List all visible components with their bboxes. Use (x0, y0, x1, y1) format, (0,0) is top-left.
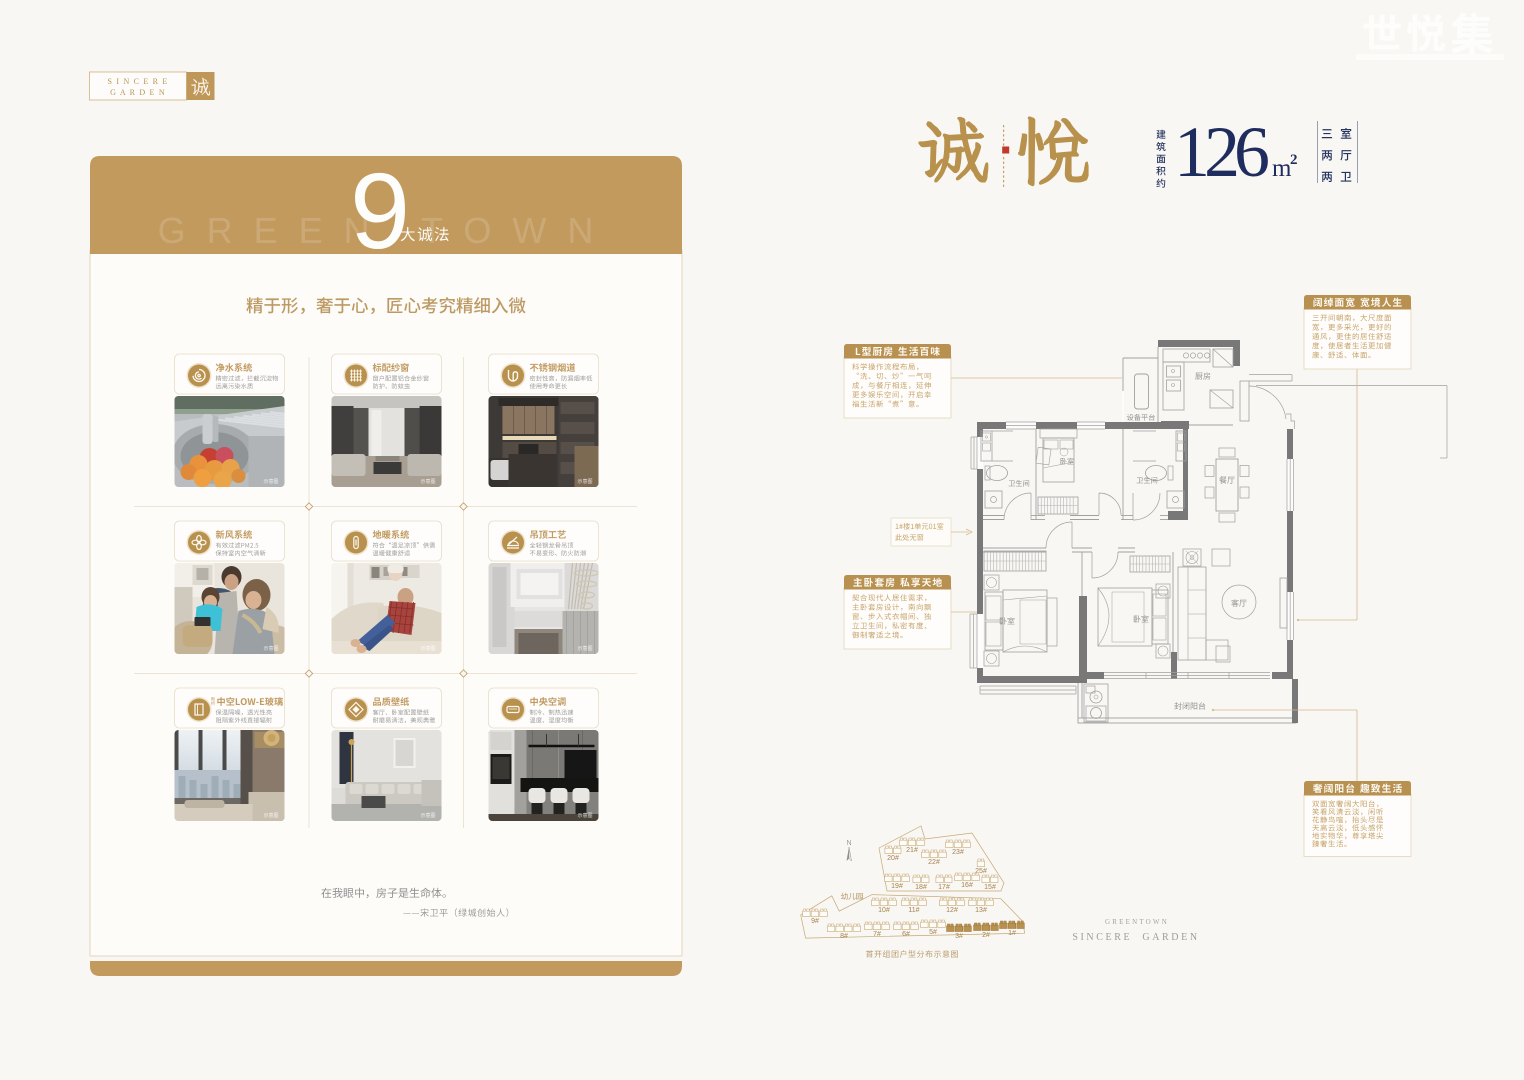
svg-text:示意图: 示意图 (263, 478, 278, 485)
svg-text:17#: 17# (938, 884, 950, 891)
svg-text:示意图: 示意图 (577, 812, 592, 819)
svg-text:2: 2 (1290, 152, 1298, 168)
svg-text:9#: 9# (811, 918, 819, 925)
svg-text:9: 9 (350, 150, 410, 271)
svg-text:16#: 16# (961, 882, 973, 889)
svg-text:23#: 23# (952, 849, 964, 856)
svg-text:18#: 18# (915, 884, 927, 891)
svg-text:示意图: 示意图 (420, 645, 435, 652)
svg-text:15#: 15# (984, 884, 996, 891)
svg-text:8#: 8# (840, 933, 848, 940)
svg-text:10#: 10# (878, 907, 890, 914)
svg-text:示意图: 示意图 (420, 812, 435, 819)
svg-text:21#: 21# (906, 847, 918, 854)
svg-text:3#: 3# (955, 933, 963, 940)
svg-text:N: N (846, 840, 851, 847)
svg-text:G A R D E N: G A R D E N (110, 88, 166, 97)
svg-text:示意图: 示意图 (420, 478, 435, 485)
svg-text:126: 126 (1174, 112, 1268, 192)
svg-text:S I N C E R E: S I N C E R E (108, 77, 169, 86)
svg-text:6#: 6# (902, 931, 910, 938)
svg-text:示意图: 示意图 (577, 645, 592, 652)
svg-text:m: m (1272, 155, 1292, 182)
svg-text:7#: 7# (873, 931, 881, 938)
svg-text:示意图: 示意图 (263, 645, 278, 652)
svg-text:示意图: 示意图 (577, 478, 592, 485)
svg-text:5#: 5# (929, 929, 937, 936)
svg-text:2#: 2# (982, 932, 990, 939)
svg-text:12#: 12# (946, 907, 958, 914)
svg-text:示意图: 示意图 (263, 812, 278, 819)
svg-text:11#: 11# (908, 907, 919, 914)
svg-text:1#: 1# (1008, 930, 1016, 937)
svg-text:SINCERE GARDEN: SINCERE GARDEN (1072, 932, 1199, 943)
svg-text:GREENTOWN: GREENTOWN (1105, 918, 1169, 926)
svg-text:13#: 13# (975, 907, 987, 914)
svg-text:20#: 20# (887, 855, 899, 862)
svg-text:19#: 19# (891, 883, 903, 890)
svg-text:22#: 22# (928, 859, 940, 866)
